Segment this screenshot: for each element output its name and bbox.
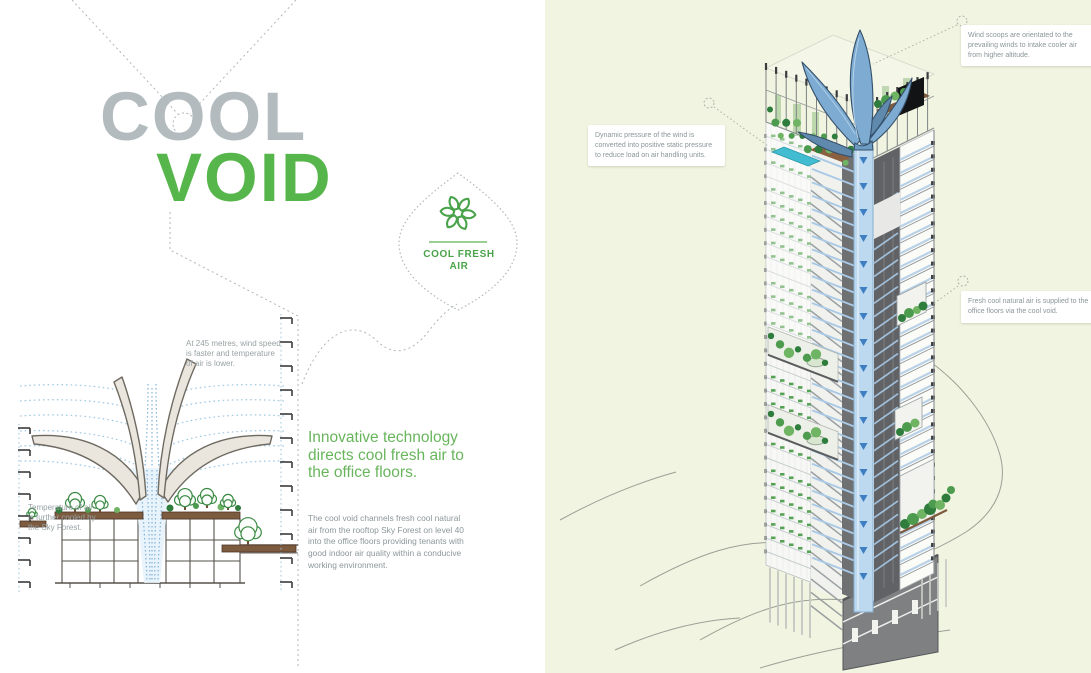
building-illustration — [560, 16, 1002, 670]
page-title: COOL VOID — [100, 86, 333, 208]
callout-dynamic-pressure: Dynamic pressure of the wind is converte… — [588, 125, 725, 166]
intro-heading: Innovative technology directs cool fresh… — [308, 429, 508, 482]
callout-fresh-air-supply: Fresh cool natural air is supplied to th… — [961, 291, 1091, 323]
title-line-cool: COOL — [100, 86, 333, 147]
callout-wind-scoops: Wind scoops are orientated to the prevai… — [961, 25, 1091, 66]
intro-body: The cool void channels fresh cool natura… — [308, 513, 523, 572]
leaf-cluster-icon — [429, 196, 487, 242]
wind-speed-annotation: At 245 metres, wind speed is faster and … — [186, 339, 281, 369]
badge-label: COOL FRESH AIR — [398, 249, 520, 273]
infographic-page: COOL VOID COOL FRESH AIR At 245 metres, … — [0, 0, 1091, 673]
title-line-void: VOID — [156, 147, 333, 208]
cool-void-shaft — [854, 145, 873, 612]
sky-forest-annotation: Temperature of air is further cooled by … — [28, 503, 96, 533]
